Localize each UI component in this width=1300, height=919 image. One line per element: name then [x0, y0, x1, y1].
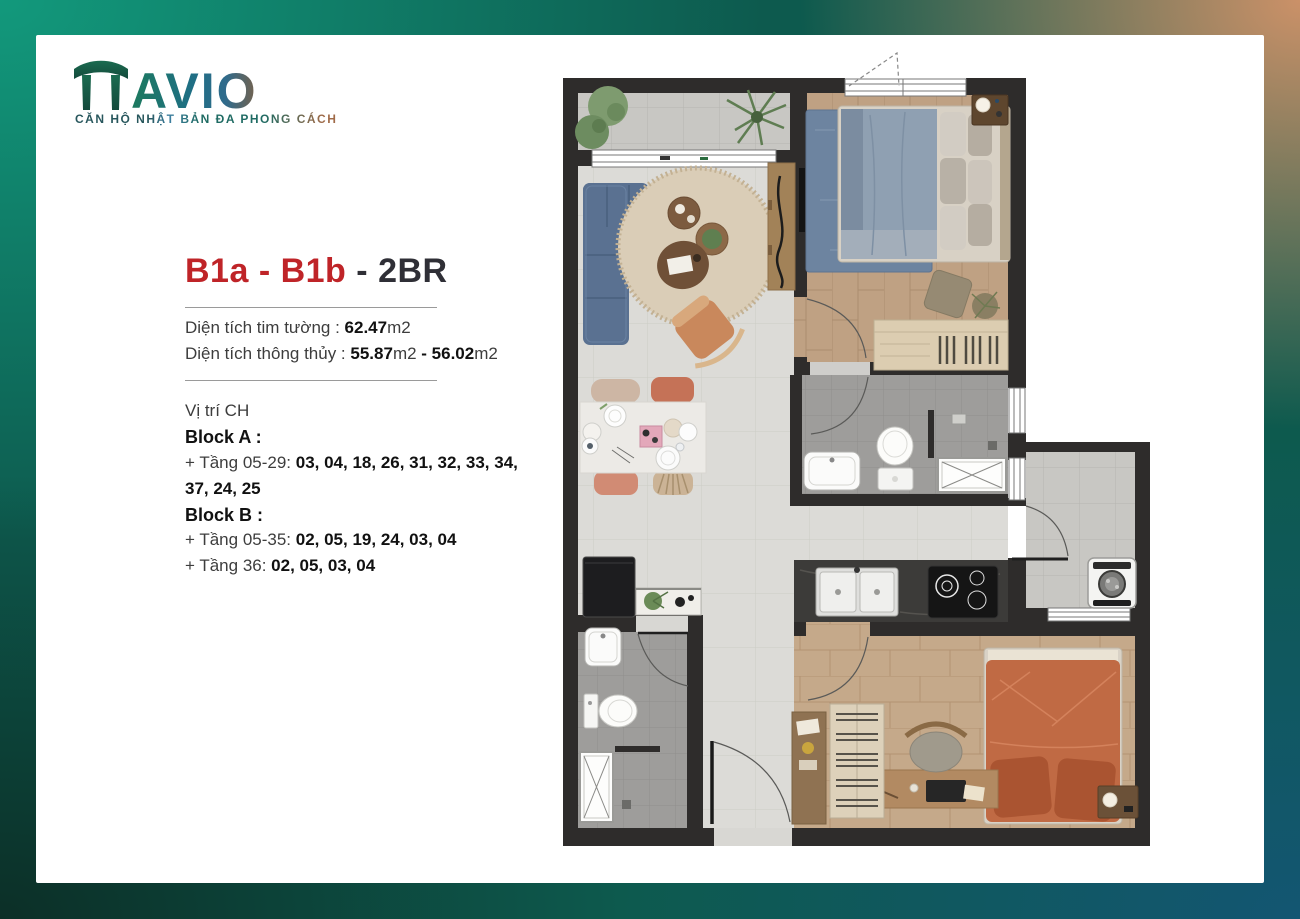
hall-floor: [794, 506, 1008, 562]
shrub-plant: [575, 115, 609, 149]
kitchen: [794, 560, 1008, 622]
net-area-line: Diện tích thông thủy : 55.87m2 - 56.02m2: [185, 344, 498, 364]
plant-console: [636, 588, 701, 615]
nightstand: [972, 95, 1008, 125]
nightstand: [1098, 786, 1138, 818]
laptop: [926, 780, 966, 802]
net-area-min-unit: m2: [393, 344, 421, 363]
gross-area-line: Diện tích tim tường : 62.47m2: [185, 318, 411, 338]
brand-tagline: CĂN HỘ NHẬT BẢN ĐA PHONG CÁCH: [75, 112, 337, 126]
gross-area-label: Diện tích tim tường :: [185, 318, 345, 337]
net-area-min: 55.87: [350, 344, 393, 363]
dresser: [874, 320, 1008, 370]
gross-area-unit: m2: [387, 318, 411, 337]
desk: [876, 770, 998, 808]
block-b-line2-units: 02, 05, 03, 04: [271, 556, 375, 575]
shower: [938, 458, 1006, 492]
unit-title: B1a - B1b - 2BR: [185, 252, 448, 291]
brand-logo: AVIO: [73, 54, 283, 120]
wardrobe: [830, 704, 884, 818]
tv-console: [768, 163, 795, 290]
bookshelf: [792, 712, 826, 824]
block-a-line2: 37, 24, 25: [185, 479, 261, 499]
block-a-line2-units: 37, 24, 25: [185, 479, 261, 498]
washing-machine: [1088, 558, 1136, 608]
block-a-line1-prefix: + Tầng 05-29:: [185, 453, 296, 472]
gross-area-value: 62.47: [345, 318, 388, 337]
balcony-sliding-door: [592, 150, 776, 167]
laundry-balcony: [1088, 558, 1136, 608]
hall-side-window: [1009, 458, 1025, 500]
papers: [963, 785, 985, 802]
block-b-line1-units: 02, 05, 19, 24, 03, 04: [296, 530, 457, 549]
unit-code: B1a - B1b: [185, 252, 346, 290]
net-area-max-unit: m2: [474, 344, 498, 363]
net-area-label: Diện tích thông thủy :: [185, 344, 350, 363]
laundry-window: [1048, 608, 1130, 621]
floor-drain: [988, 441, 997, 450]
torii-gate-icon: [74, 61, 128, 110]
lamp: [976, 98, 990, 112]
master-bed: [838, 106, 1010, 262]
toilet: [877, 427, 913, 490]
induction-hob: [928, 566, 998, 618]
block-a-title: Block A :: [185, 427, 262, 448]
block-b-line2: + Tầng 36: 02, 05, 03, 04: [185, 556, 375, 576]
headboard: [1000, 108, 1010, 260]
toilet: [584, 694, 637, 728]
unit-title-separator: -: [356, 252, 368, 290]
master-window: [845, 79, 966, 96]
wall-tv: [799, 168, 805, 232]
serving-tray: [640, 426, 662, 447]
divider-bottom: [185, 380, 437, 381]
block-a-line1: + Tầng 05-29: 03, 04, 18, 26, 31, 32, 33…: [185, 453, 518, 473]
floor-plan: [560, 40, 1150, 850]
wall-cabinet: [952, 414, 966, 424]
location-heading: Vị trí CH: [185, 401, 249, 421]
faucet: [854, 567, 860, 573]
block-b-title: Block B :: [185, 505, 263, 526]
block-b-line1: + Tầng 05-35: 02, 05, 19, 24, 03, 04: [185, 530, 456, 550]
floor-drain: [622, 800, 631, 809]
block-a-line1-units: 03, 04, 18, 26, 31, 32, 33, 34,: [296, 453, 518, 472]
pillows: [940, 112, 992, 250]
fridge: [583, 557, 635, 617]
block-b-line1-prefix: + Tầng 05-35:: [185, 530, 296, 549]
kitchen-sink: [816, 567, 898, 616]
unit-type: 2BR: [378, 252, 448, 290]
bathroom-sink: [585, 628, 621, 666]
dining-chair: [591, 379, 640, 403]
entry-threshold: [714, 828, 792, 846]
table-plant: [702, 229, 722, 249]
dining-chair-orange: [594, 471, 638, 495]
dining-chair-spindle: [653, 471, 693, 495]
poster-background: AVIO CĂN HỘ NHẬT BẢN ĐA PHONG CÁCH B1a -…: [0, 0, 1300, 919]
shower: [580, 752, 613, 822]
pillow: [990, 756, 1053, 819]
net-area-max: - 56.02: [421, 344, 474, 363]
brand-name: AVIO: [131, 63, 258, 119]
ensuite-window: [1009, 388, 1025, 433]
block-b-line2-prefix: + Tầng 36:: [185, 556, 271, 575]
divider-top: [185, 307, 437, 308]
lamp: [1103, 793, 1117, 807]
dining-chair-orange: [651, 377, 694, 403]
bathroom-sink: [804, 452, 860, 490]
